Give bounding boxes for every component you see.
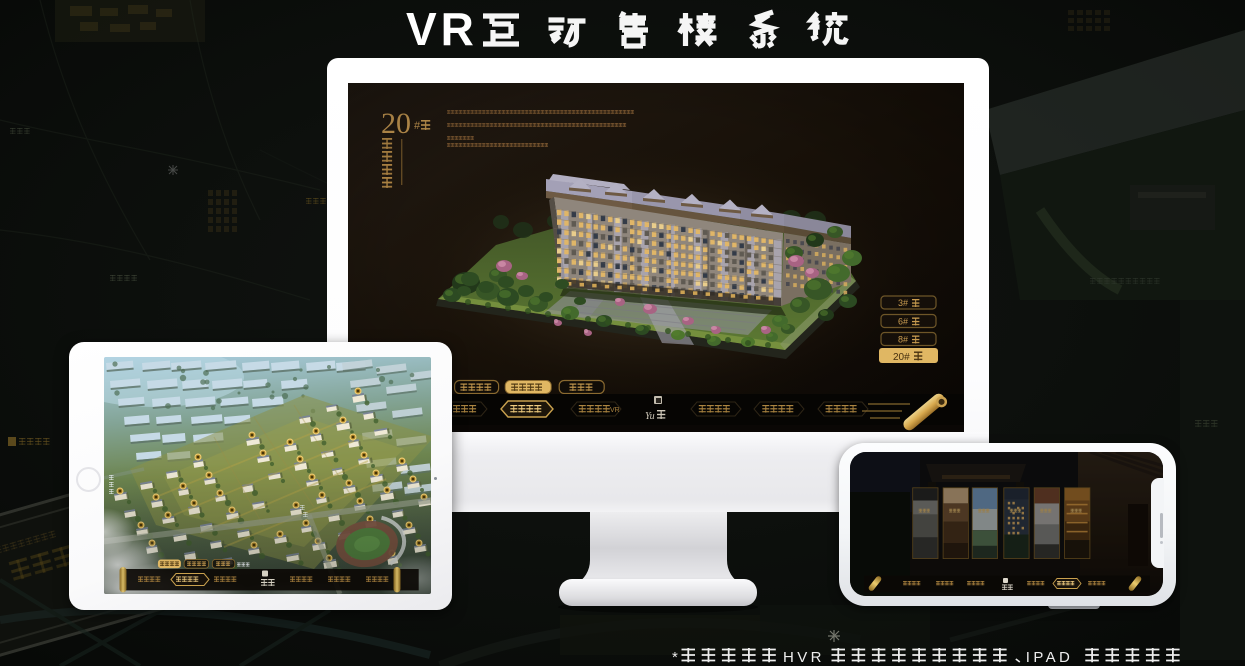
svg-text:6#: 6#: [898, 317, 908, 327]
svg-text:*: *: [672, 649, 678, 666]
svg-text:IPAD: IPAD: [1026, 649, 1074, 666]
svg-text:HVR: HVR: [783, 649, 825, 666]
svg-text:VR: VR: [406, 5, 478, 53]
svg-text:8#: 8#: [898, 335, 908, 345]
svg-text:Yu: Yu: [645, 411, 655, 422]
svg-text:VR: VR: [610, 407, 620, 414]
svg-text:20#: 20#: [893, 352, 910, 363]
svg-text:3#: 3#: [898, 298, 908, 308]
